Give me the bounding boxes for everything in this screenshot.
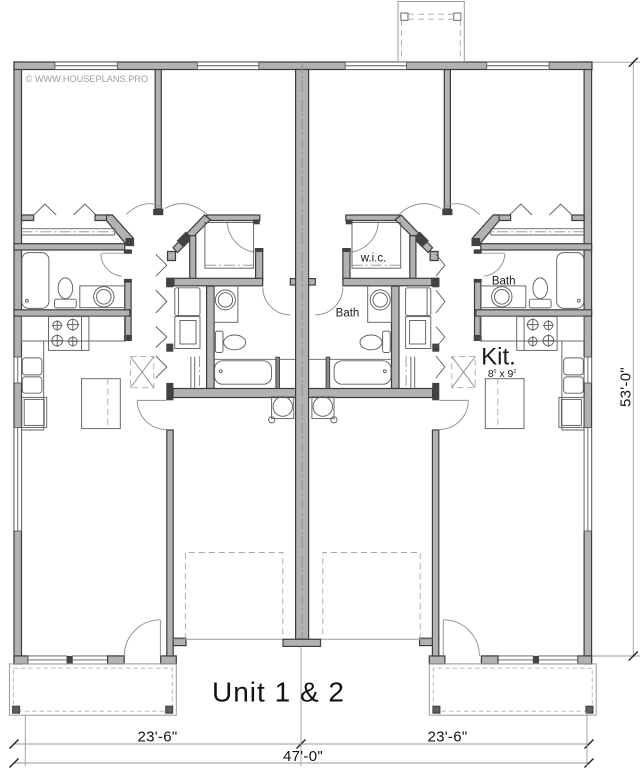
- svg-text:w.i.c.: w.i.c.: [360, 253, 387, 265]
- svg-text:Bath: Bath: [492, 276, 516, 288]
- svg-text:Bath: Bath: [336, 308, 360, 320]
- svg-text:© WWW.HOUSEPLANS.PRO: © WWW.HOUSEPLANS.PRO: [26, 74, 149, 84]
- svg-text:80 x 92: 80 x 92: [488, 368, 517, 380]
- svg-text:Kit.: Kit.: [481, 344, 516, 371]
- svg-text:53'-0": 53'-0": [618, 367, 635, 407]
- svg-text:23'-6": 23'-6": [137, 729, 177, 746]
- svg-text:Unit 1 & 2: Unit 1 & 2: [212, 677, 345, 708]
- svg-text:47'-0": 47'-0": [283, 748, 323, 765]
- svg-text:23'-6": 23'-6": [427, 729, 467, 746]
